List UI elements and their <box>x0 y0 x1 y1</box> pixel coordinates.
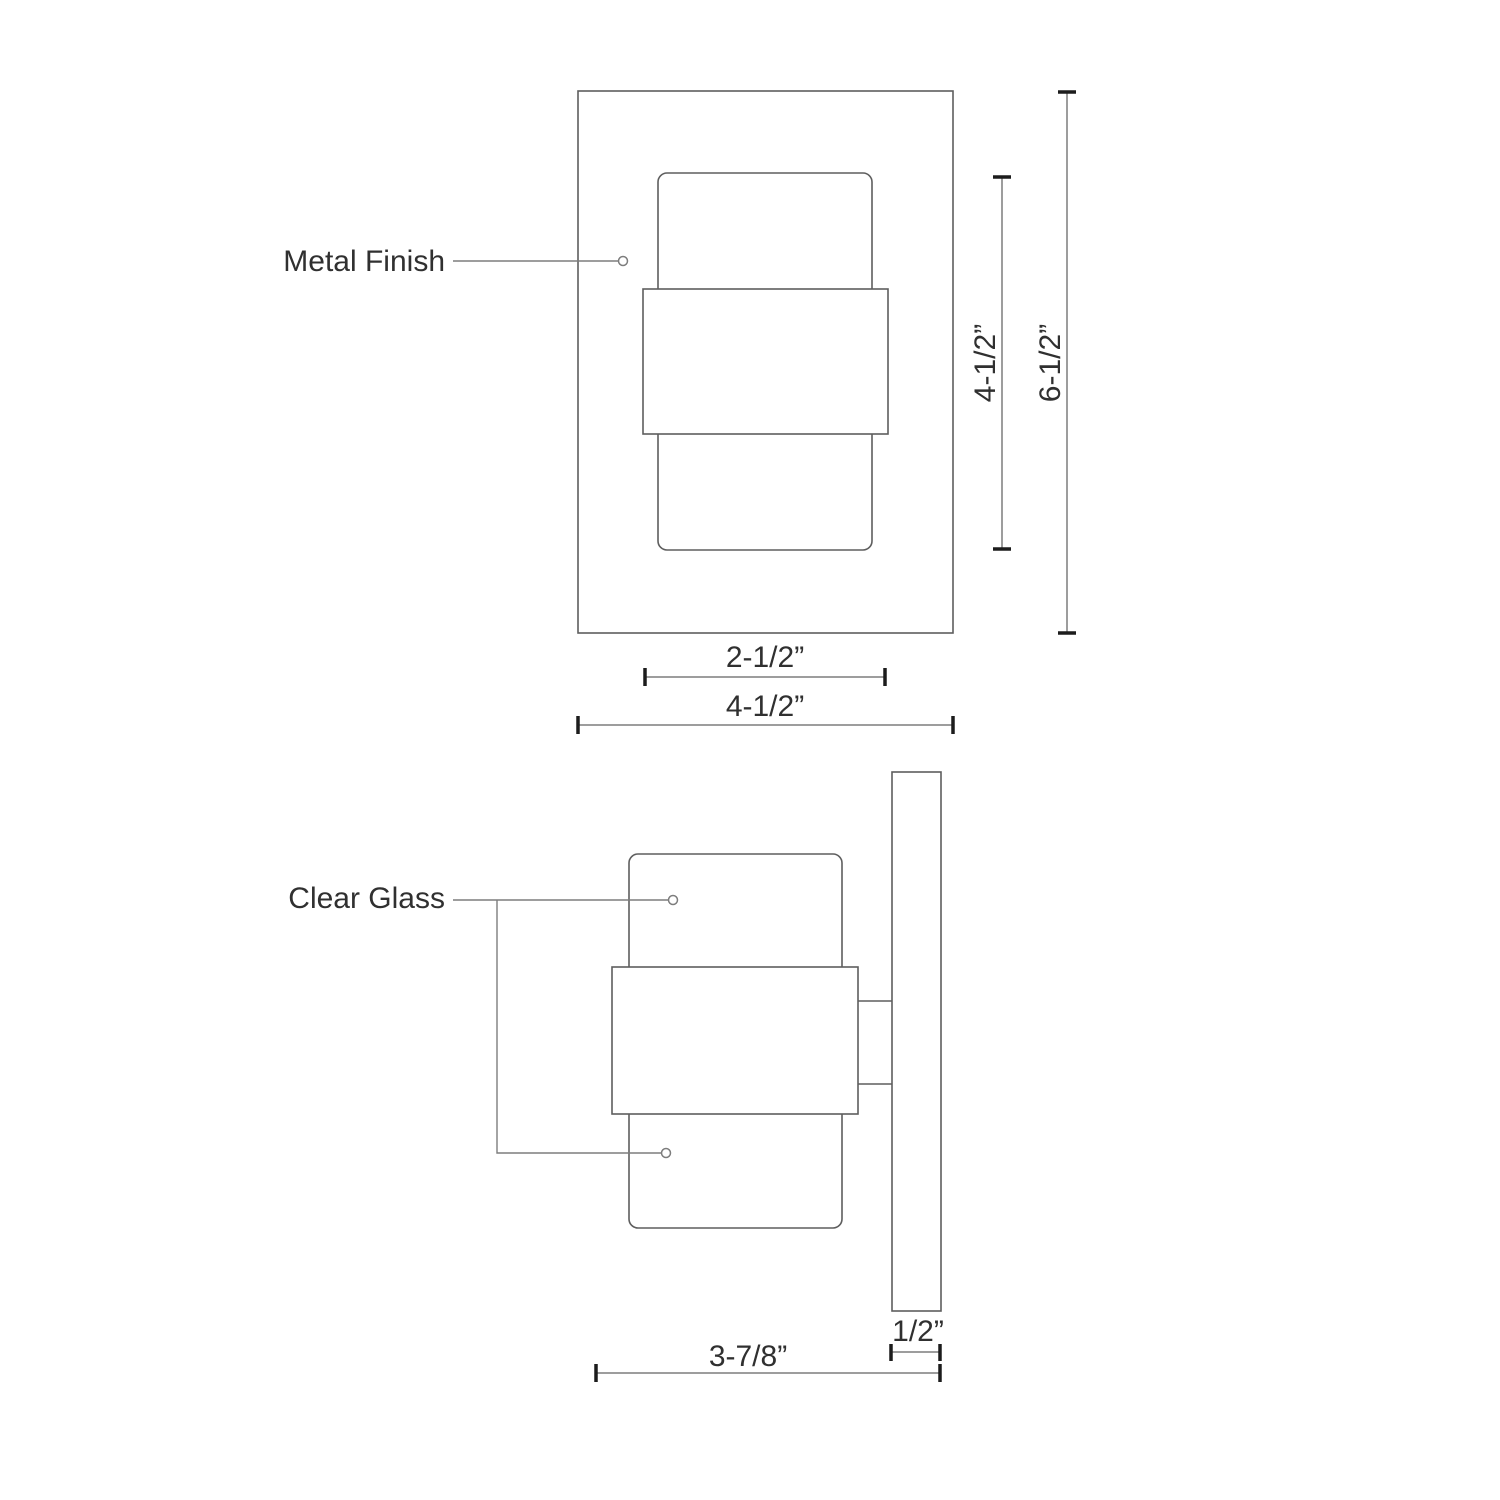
side-plate-thickness-value: 1/2” <box>892 1315 944 1348</box>
side-metal-band-outline <box>612 967 858 1114</box>
front-overall-width-value: 4-1/2” <box>726 690 804 723</box>
leader-dot <box>662 1149 671 1158</box>
front-view <box>578 91 953 633</box>
leader-dot <box>619 257 628 266</box>
side-backplate-outline <box>892 772 941 1311</box>
front-overall-height-value: 6-1/2” <box>1034 324 1067 402</box>
dimension-diagram: Metal Finish 4-1/2” 6-1/2” 2-1/2” <box>0 0 1500 1500</box>
spec-sheet-drawing: Metal Finish 4-1/2” 6-1/2” 2-1/2” <box>0 0 1500 1500</box>
front-glass-height-value: 4-1/2” <box>969 324 1002 402</box>
clear-glass-label: Clear Glass <box>288 882 445 915</box>
front-overall-width-dimension: 4-1/2” <box>578 690 953 734</box>
front-inner-width-value: 2-1/2” <box>726 641 804 674</box>
side-overall-depth-value: 3-7/8” <box>709 1340 787 1373</box>
front-overall-height-dimension: 6-1/2” <box>1034 92 1076 633</box>
front-glass-height-dimension: 4-1/2” <box>969 177 1011 549</box>
metal-finish-callout: Metal Finish <box>283 245 627 278</box>
front-inner-width-dimension: 2-1/2” <box>645 641 885 686</box>
side-view <box>612 772 941 1311</box>
leader-dot <box>669 896 678 905</box>
side-overall-depth-dimension: 3-7/8” <box>596 1340 940 1382</box>
front-metal-band-outline <box>643 289 888 434</box>
metal-finish-label: Metal Finish <box>283 245 445 278</box>
side-plate-thickness-dimension: 1/2” <box>891 1315 944 1361</box>
